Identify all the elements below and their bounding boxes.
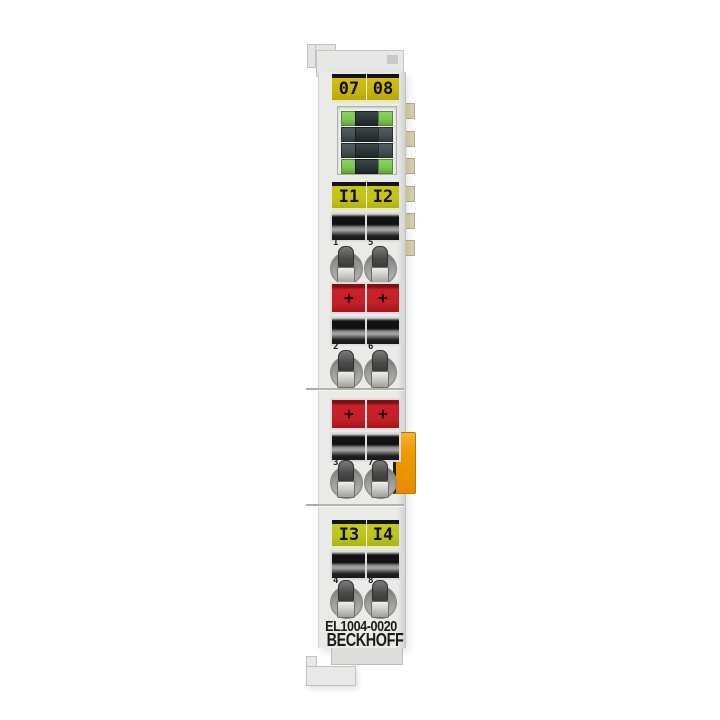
wire-clamp-insert	[371, 371, 389, 388]
clamp-contact-opening	[367, 434, 399, 460]
terminal-point-number: 6	[368, 343, 373, 352]
wire-clamp-insert	[337, 371, 355, 388]
spring-release-lever	[338, 460, 354, 482]
led-off-indicator	[341, 127, 356, 142]
clamp-contact-opening	[367, 318, 399, 344]
power-contact-plus: +	[332, 400, 366, 428]
clamp-contact-opening	[332, 552, 366, 578]
spring-release-lever	[372, 350, 388, 372]
led-green-indicator	[341, 159, 356, 174]
designation-label-text: 08	[367, 78, 399, 100]
housing-seam-pin	[306, 504, 318, 506]
housing-seam-pin	[306, 388, 318, 390]
housing-bottom-recess	[331, 648, 403, 665]
led-dark-slot	[355, 127, 379, 142]
power-contact-plus: +	[332, 284, 366, 312]
led-off-indicator	[341, 143, 356, 158]
housing-seam	[318, 388, 404, 390]
label-bevel	[367, 208, 399, 211]
led-green-indicator	[378, 159, 393, 174]
wire-clamp-insert	[337, 267, 355, 284]
led-row	[341, 143, 391, 156]
designation-label-i1: I1	[332, 182, 366, 211]
spring-release-lever	[372, 580, 388, 602]
clamp-contact-opening	[332, 434, 366, 460]
wire-clamp-insert	[371, 267, 389, 284]
mounting-foot-bar	[306, 666, 356, 686]
label-bevel	[367, 546, 399, 549]
wire-clamp-insert	[337, 481, 355, 498]
clamp-contact-opening	[367, 552, 399, 578]
spring-release-lever	[372, 460, 388, 482]
designation-label-08: 08	[367, 74, 399, 103]
led-off-indicator	[378, 143, 393, 158]
led-dark-slot	[355, 143, 379, 158]
designation-label-i2: I2	[367, 182, 399, 211]
designation-label-text: I2	[367, 186, 399, 208]
mounting-hook-top-leg	[307, 44, 316, 68]
led-dark-slot	[355, 111, 379, 126]
designation-label-text: I4	[367, 524, 399, 546]
designation-label-text: I1	[332, 186, 366, 208]
spring-release-lever	[372, 246, 388, 268]
designation-label-07: 07	[332, 74, 366, 103]
led-row	[341, 111, 391, 124]
designation-label-text: 07	[332, 78, 366, 100]
spring-release-lever	[338, 350, 354, 372]
spring-release-lever	[338, 580, 354, 602]
label-bevel	[332, 100, 366, 103]
spring-release-lever	[338, 246, 354, 268]
clamp-contact-opening	[332, 214, 366, 240]
clamp-contact-opening	[332, 318, 366, 344]
wire-clamp-insert	[371, 601, 389, 618]
terminal-point-number: 5	[368, 239, 373, 248]
terminal-point-number: 1	[333, 239, 338, 248]
terminal-point-number: 2	[333, 343, 338, 352]
designation-label-i3: I3	[332, 520, 366, 549]
power-contact-plus: +	[367, 284, 399, 312]
label-bevel	[332, 546, 366, 549]
led-dark-slot	[355, 159, 379, 174]
clamp-contact-opening	[367, 214, 399, 240]
designation-label-i4: I4	[367, 520, 399, 549]
led-row	[341, 127, 391, 140]
product-image-canvas: 07 08 I1	[0, 0, 720, 720]
led-status-panel	[337, 106, 397, 175]
designation-label-text: I3	[332, 524, 366, 546]
wire-clamp-insert	[371, 481, 389, 498]
led-green-indicator	[341, 111, 356, 126]
housing-seam	[318, 504, 404, 506]
led-row	[341, 159, 391, 172]
power-contact-plus: +	[367, 400, 399, 428]
led-green-indicator	[378, 111, 393, 126]
led-off-indicator	[378, 127, 393, 142]
wire-clamp-insert	[337, 601, 355, 618]
label-bevel	[367, 100, 399, 103]
top-rail-notch	[387, 55, 398, 64]
label-bevel	[332, 208, 366, 211]
